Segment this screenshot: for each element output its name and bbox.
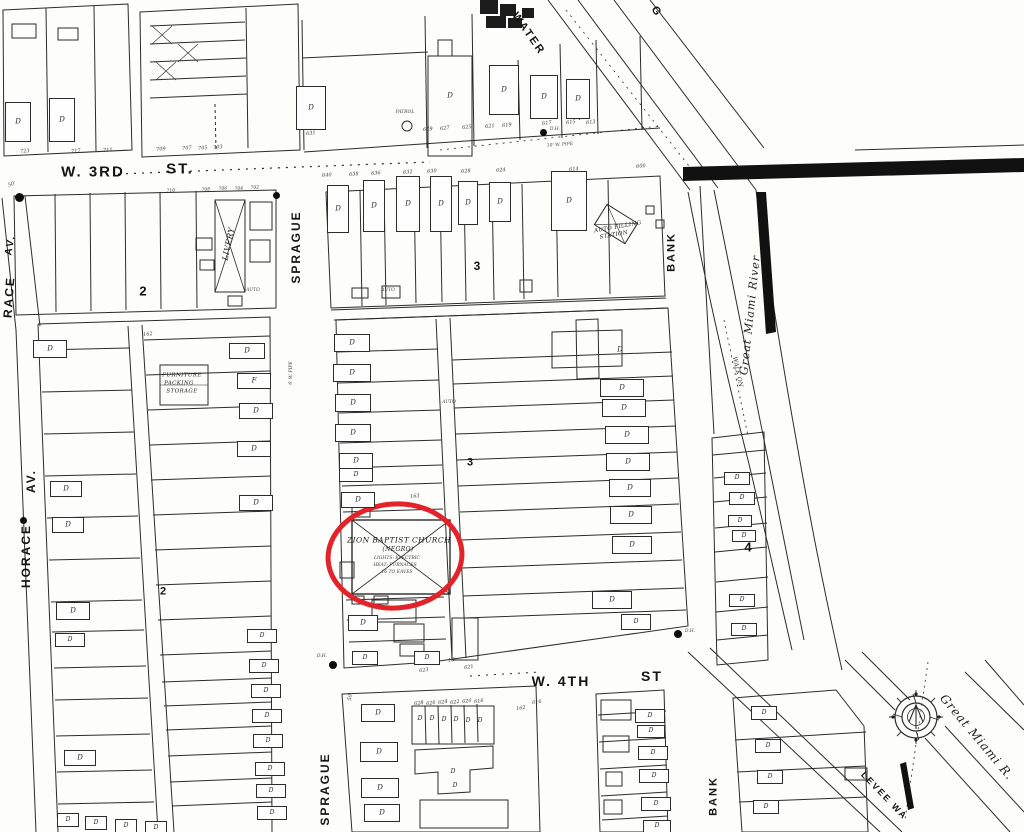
map-text: 711 xyxy=(103,148,113,154)
map-text: D xyxy=(251,446,257,453)
map-text: D xyxy=(355,497,361,504)
map-text: 723 xyxy=(20,149,30,155)
block-4-number: 4 xyxy=(744,541,751,554)
block-2-number-south: 2 xyxy=(160,587,166,598)
block-3-number-south: 3 xyxy=(467,458,473,469)
block-3-number-north: 3 xyxy=(474,260,481,272)
map-text: 613 xyxy=(586,120,596,126)
map-text: D xyxy=(466,718,471,724)
map-text: D xyxy=(447,93,453,100)
map-text: 622 xyxy=(450,700,460,706)
hydrant-dot xyxy=(20,517,27,524)
water-pipe-label: 6' W. PIPE xyxy=(290,361,295,384)
map-text: 628 xyxy=(461,169,471,175)
map-text: D xyxy=(654,801,659,807)
map-text: D xyxy=(629,542,635,549)
map-text: D xyxy=(649,728,654,734)
map-text: D xyxy=(244,348,250,355)
map-text: 621 xyxy=(485,124,495,130)
furniture-storage-label: FURNITURE xyxy=(162,373,202,379)
map-text: D xyxy=(260,633,265,639)
map-text: 626 xyxy=(426,701,436,707)
map-text: 50' xyxy=(348,693,355,702)
map-text: 705 xyxy=(198,146,208,152)
map-text: 628 xyxy=(414,701,424,707)
street-label-bank-south: BANK xyxy=(709,776,720,816)
map-text: 600 xyxy=(636,164,646,170)
map-text: D xyxy=(764,804,769,810)
church-lights-note: LIGHTS: ELECTRIC xyxy=(374,557,420,562)
map-text: D xyxy=(430,716,435,722)
map-text: D xyxy=(651,750,656,756)
map-text: 629 xyxy=(423,127,433,133)
map-text: 16' xyxy=(448,658,456,664)
label-layer: W. 3RDST.W. 4THSTSPRAGUESPRAGUEBANKBANKH… xyxy=(0,0,1024,832)
map-text: D xyxy=(350,400,356,407)
map-text: D xyxy=(268,766,273,772)
street-label-race-av: AV. xyxy=(4,234,17,256)
map-text: 627 xyxy=(440,126,450,132)
map-text: D xyxy=(349,340,355,347)
double-hydrant-label: D.H. xyxy=(685,630,695,635)
river-label: Great Miami River xyxy=(738,254,762,375)
map-text: D xyxy=(349,370,355,377)
map-text: 709 xyxy=(156,147,166,153)
map-text: D xyxy=(541,94,547,101)
map-text: 706 xyxy=(219,187,228,192)
map-text: 625 xyxy=(462,125,472,131)
street-label-w-3rd-st: ST. xyxy=(166,162,194,177)
map-text: 631 xyxy=(306,131,316,137)
map-text: D xyxy=(335,206,341,213)
map-text: D xyxy=(655,823,660,829)
map-text: D xyxy=(451,769,456,775)
map-text: 162 xyxy=(143,332,153,338)
map-text: 616 xyxy=(474,699,484,705)
street-label-w-4th-st: ST xyxy=(641,669,663,683)
hydrant-dot xyxy=(329,661,337,669)
street-label-sprague-south: SPRAGUE xyxy=(319,752,331,825)
map-text: 638 xyxy=(349,172,359,178)
map-text: D xyxy=(619,385,625,392)
church-heat-note: HEAT: FURNACES xyxy=(373,564,416,569)
map-text: F xyxy=(252,378,257,385)
map-text: D xyxy=(377,785,383,792)
auto-garage-label: AUTO xyxy=(381,289,395,294)
map-text: D xyxy=(740,597,745,603)
map-text: D xyxy=(478,718,483,724)
map-text: D xyxy=(266,738,271,744)
patrol-box-label: PATROL xyxy=(396,111,415,116)
map-text: D xyxy=(350,430,356,437)
street-label-race: RACE xyxy=(2,276,17,319)
church-eaves-note: 16 TO EAVES xyxy=(381,571,412,576)
street-label-w-3rd: W. 3RD xyxy=(61,165,125,180)
map-text: D xyxy=(762,710,767,716)
map-text: 50' xyxy=(8,181,17,188)
map-text: D xyxy=(375,710,381,717)
map-text: 617 xyxy=(542,121,552,127)
map-text: D xyxy=(77,755,83,762)
river-label-top-partial: G xyxy=(649,5,664,20)
map-text: D xyxy=(438,201,444,208)
double-hydrant-label: D.H. xyxy=(317,655,327,660)
map-text: D xyxy=(269,788,274,794)
auto-garage-label: AUTO xyxy=(442,401,456,406)
map-text: D xyxy=(766,743,771,749)
map-text: D xyxy=(262,663,267,669)
map-text: D xyxy=(253,408,259,415)
livery-label: LIVERY xyxy=(222,227,237,261)
map-text: D xyxy=(425,655,430,661)
map-text: D xyxy=(354,472,359,478)
map-text: 703 xyxy=(213,145,223,151)
map-text: D xyxy=(264,688,269,694)
street-label-sprague-north: SPRAGUE xyxy=(290,210,302,283)
map-text: D xyxy=(621,405,627,412)
furniture-storage-label: STORAGE xyxy=(166,389,197,395)
map-text: 704 xyxy=(235,187,244,192)
map-text: D xyxy=(566,198,572,205)
map-text: 163 xyxy=(410,494,420,500)
map-text: D xyxy=(634,619,639,625)
map-text: D xyxy=(617,347,623,354)
zion-baptist-church-sublabel: (NEGRO) xyxy=(382,547,413,553)
map-text: 619 xyxy=(502,123,512,129)
map-text: D xyxy=(47,346,53,353)
map-text: 620 xyxy=(462,699,472,705)
map-text: D xyxy=(609,597,615,604)
map-text: 640 xyxy=(322,173,332,179)
map-text: 708 xyxy=(202,188,211,193)
street-label-w-4th: W. 4TH xyxy=(532,674,591,688)
map-text: D xyxy=(742,533,747,539)
map-text: D xyxy=(575,96,581,103)
river-label-bottom: Great Miami R. xyxy=(938,692,1016,782)
map-text: D xyxy=(418,716,423,722)
map-text: D xyxy=(405,201,411,208)
map-text: D xyxy=(652,773,657,779)
map-text: D xyxy=(154,825,159,831)
map-text: D xyxy=(648,713,653,719)
water-pipe-label: 10' W. PIPE xyxy=(547,143,573,149)
furniture-storage-label: PACKING xyxy=(164,381,194,387)
map-text: D xyxy=(624,432,630,439)
map-text: D xyxy=(376,749,382,756)
map-text: D xyxy=(371,203,377,210)
map-text: D xyxy=(353,458,359,465)
map-text: D xyxy=(742,626,747,632)
map-text: 710 xyxy=(167,189,176,194)
hydrant-dot xyxy=(674,630,682,638)
map-text: 615 xyxy=(566,120,576,126)
map-text: D xyxy=(94,820,99,826)
map-text: D xyxy=(735,475,740,481)
levee-label: LEVEE WA xyxy=(859,770,909,821)
map-text: D xyxy=(738,518,743,524)
map-text: 717 xyxy=(71,149,81,155)
map-text: D xyxy=(628,512,634,519)
map-text: D xyxy=(501,87,507,94)
map-text: D xyxy=(66,817,71,823)
double-hydrant-label: D.H. xyxy=(550,128,560,133)
map-text: D xyxy=(65,522,71,529)
map-text: 621 xyxy=(464,665,474,671)
map-text: D xyxy=(63,486,69,493)
map-text: D xyxy=(497,199,503,206)
map-text: D xyxy=(379,810,385,817)
hydrant-dot xyxy=(273,192,280,199)
zion-baptist-church-label: ZION BAPTIST CHURCH xyxy=(347,536,451,544)
map-text: D xyxy=(15,119,21,126)
map-text: D xyxy=(270,810,275,816)
sanborn-map-canvas: W. 3RDST.W. 4THSTSPRAGUESPRAGUEBANKBANKH… xyxy=(0,0,1024,832)
map-text: 616 xyxy=(532,700,542,706)
map-text: 162 xyxy=(516,706,526,712)
map-text: D xyxy=(740,495,745,501)
map-text: D xyxy=(454,717,459,723)
map-text: D xyxy=(360,620,366,627)
map-text: D xyxy=(308,105,314,112)
map-text: D xyxy=(627,485,633,492)
hydrant-dot xyxy=(15,193,24,202)
hydrant-dot xyxy=(540,129,547,136)
block-2-number: 2 xyxy=(139,285,146,298)
map-text: D xyxy=(124,823,129,829)
map-text: D xyxy=(265,713,270,719)
street-label-bank-north: BANK xyxy=(667,232,678,272)
map-text: 623 xyxy=(419,668,429,674)
map-text: 636 xyxy=(371,171,381,177)
map-text: D xyxy=(59,117,65,124)
map-text: D xyxy=(625,459,631,466)
map-text: D xyxy=(453,783,458,789)
map-text: D xyxy=(363,655,368,661)
map-text: 624 xyxy=(438,700,448,706)
auto-garage-label: AUTO xyxy=(246,289,260,294)
map-text: 624 xyxy=(496,168,506,174)
street-label-horace-av: AV. xyxy=(25,469,37,493)
map-text: D xyxy=(70,608,76,615)
map-text: 630 xyxy=(427,169,437,175)
map-text: D xyxy=(465,200,471,207)
street-label-water: WATER xyxy=(509,11,546,57)
map-text: D xyxy=(442,717,447,723)
map-text: D xyxy=(253,500,259,507)
map-text: 707 xyxy=(182,146,192,152)
street-label-horace: HORACE xyxy=(20,524,32,588)
map-text: D xyxy=(768,774,773,780)
map-text: D xyxy=(68,637,73,643)
map-text: 702 xyxy=(251,186,260,191)
